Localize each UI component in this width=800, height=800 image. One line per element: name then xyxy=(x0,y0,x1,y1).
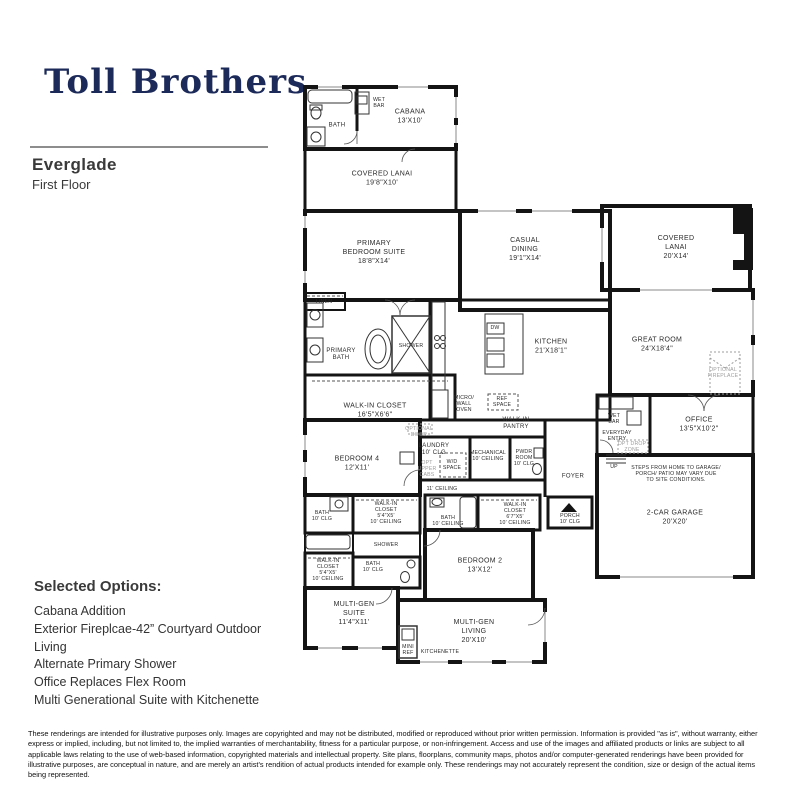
label-opt-drop-zone: OPT DROP ZONE xyxy=(618,441,647,453)
washer-icon xyxy=(400,452,414,464)
room-label-multigen-suite: MULTI-GEN SUITE 11'4"X11' xyxy=(334,601,375,627)
wet-bar-counter-icon xyxy=(599,397,633,409)
room-label-bedroom2: BEDROOM 2 13'X12' xyxy=(458,557,503,575)
toilet-icon xyxy=(401,572,410,583)
label-mini-ref: MINI REF xyxy=(402,644,414,656)
toilet-icon xyxy=(311,107,321,119)
room-label-multigen-living: MULTI-GEN LIVING 20'X10' xyxy=(454,619,495,645)
room-label-cabana-wet-bar: WET BAR xyxy=(373,97,385,109)
room-label-cabana-bath: BATH xyxy=(329,122,346,129)
courtyard-fireplace-icon xyxy=(733,208,753,270)
room-label-linen: LINEN xyxy=(316,299,332,305)
room-label-foyer: FOYER xyxy=(562,473,584,480)
bathtub-icon xyxy=(306,535,350,549)
label-optional-fireplace: OPTIONAL FIREPLACE xyxy=(708,367,739,379)
room-label-shower-primary: SHOWER xyxy=(399,343,424,349)
vanity-icon xyxy=(307,338,323,362)
room-label-walkin-closet-mg: WALK-IN CLOSET 5'4"X5' 10' CEILING xyxy=(312,558,343,583)
room-label-bath2: BATH 10' CEILING xyxy=(432,515,463,527)
room-label-mechanical: MECHANICAL 10' CEILING xyxy=(470,450,506,462)
label-steps-note: STEPS FROM HOME TO GARAGE/ PORCH/ PATIO … xyxy=(631,465,720,483)
room-label-walkin-pantry: WALK-IN PANTRY xyxy=(503,417,530,431)
room-label-covered-lanai-right: COVERED LANAI 20'X14' xyxy=(658,235,695,261)
room-label-walkin-closet2: WALK-IN CLOSET 6'7"X5' 10' CEILING xyxy=(499,502,530,527)
room-label-laundry: LAUNDRY 10' CLG xyxy=(419,443,450,457)
room-label-pwdr: PWDR ROOM 10' CLG xyxy=(514,449,534,467)
label-micro-wall-oven: MICRO/ WALL OVEN xyxy=(454,395,474,413)
room-label-walkin-closet-primary: WALK-IN CLOSET 16'5"X6'6" xyxy=(343,402,406,420)
vanity-icon xyxy=(307,303,323,327)
wall-oven-icon xyxy=(432,390,448,418)
room-label-garage: 2-CAR GARAGE 20'X20' xyxy=(647,509,704,527)
label-optional-door: OPTIONAL DOOR xyxy=(405,426,433,438)
room-label-porch: PORCH 10' CLG xyxy=(560,513,580,525)
cooktop-icon xyxy=(435,336,440,341)
label-wd-space: W/D SPACE xyxy=(443,459,461,471)
room-label-bedroom4: BEDROOM 4 12'X11' xyxy=(335,455,380,473)
label-opt-upper-cabs: OPT UPPER CABS xyxy=(418,460,437,478)
label-wet-bar-garage: WET BAR xyxy=(608,413,620,425)
kitchen-counter-icon xyxy=(432,302,445,390)
label-up: UP xyxy=(610,464,618,470)
room-label-kitchen: KITCHEN 21'X18'1" xyxy=(535,338,568,356)
label-11-ceiling: 11' CEILING xyxy=(427,486,458,492)
floor-plan: BATH WET BAR CABANA 13'X10' COVERED LANA… xyxy=(0,0,800,800)
label-ref-space: REF SPACE xyxy=(493,396,511,408)
room-label-primary-bath: PRIMARY BATH xyxy=(326,348,355,362)
room-label-great-room: GREAT ROOM 24'X18'4" xyxy=(632,336,682,354)
sink-icon xyxy=(330,497,348,511)
label-kitchenette: KITCHENETTE xyxy=(421,649,459,655)
sink-icon xyxy=(307,127,325,146)
room-label-cabana: CABANA 13'X10' xyxy=(395,108,426,126)
front-door-icon xyxy=(561,503,577,512)
label-dw: DW xyxy=(490,325,499,331)
room-label-bath-mg: BATH 10' CLG xyxy=(363,561,383,573)
room-label-bath4: BATH 10' CLG xyxy=(312,510,332,522)
room-label-casual-dining: CASUAL DINING 19'1"X14' xyxy=(509,237,541,263)
room-label-primary-bedroom: PRIMARY BEDROOM SUITE 18'8"X14' xyxy=(343,240,406,266)
room-label-covered-lanai-cabana: COVERED LANAI 19'8"X10' xyxy=(352,170,413,188)
page: Toll Brothers Everglade First Floor Sele… xyxy=(0,0,800,800)
room-label-walkin-closet4: WALK-IN CLOSET 5'4"X5' 10' CEILING xyxy=(370,501,401,526)
room-label-shower-mid: SHOWER xyxy=(374,542,399,548)
room-label-office: OFFICE 13'5"X10'2" xyxy=(680,416,719,434)
bathtub-icon xyxy=(308,90,352,103)
